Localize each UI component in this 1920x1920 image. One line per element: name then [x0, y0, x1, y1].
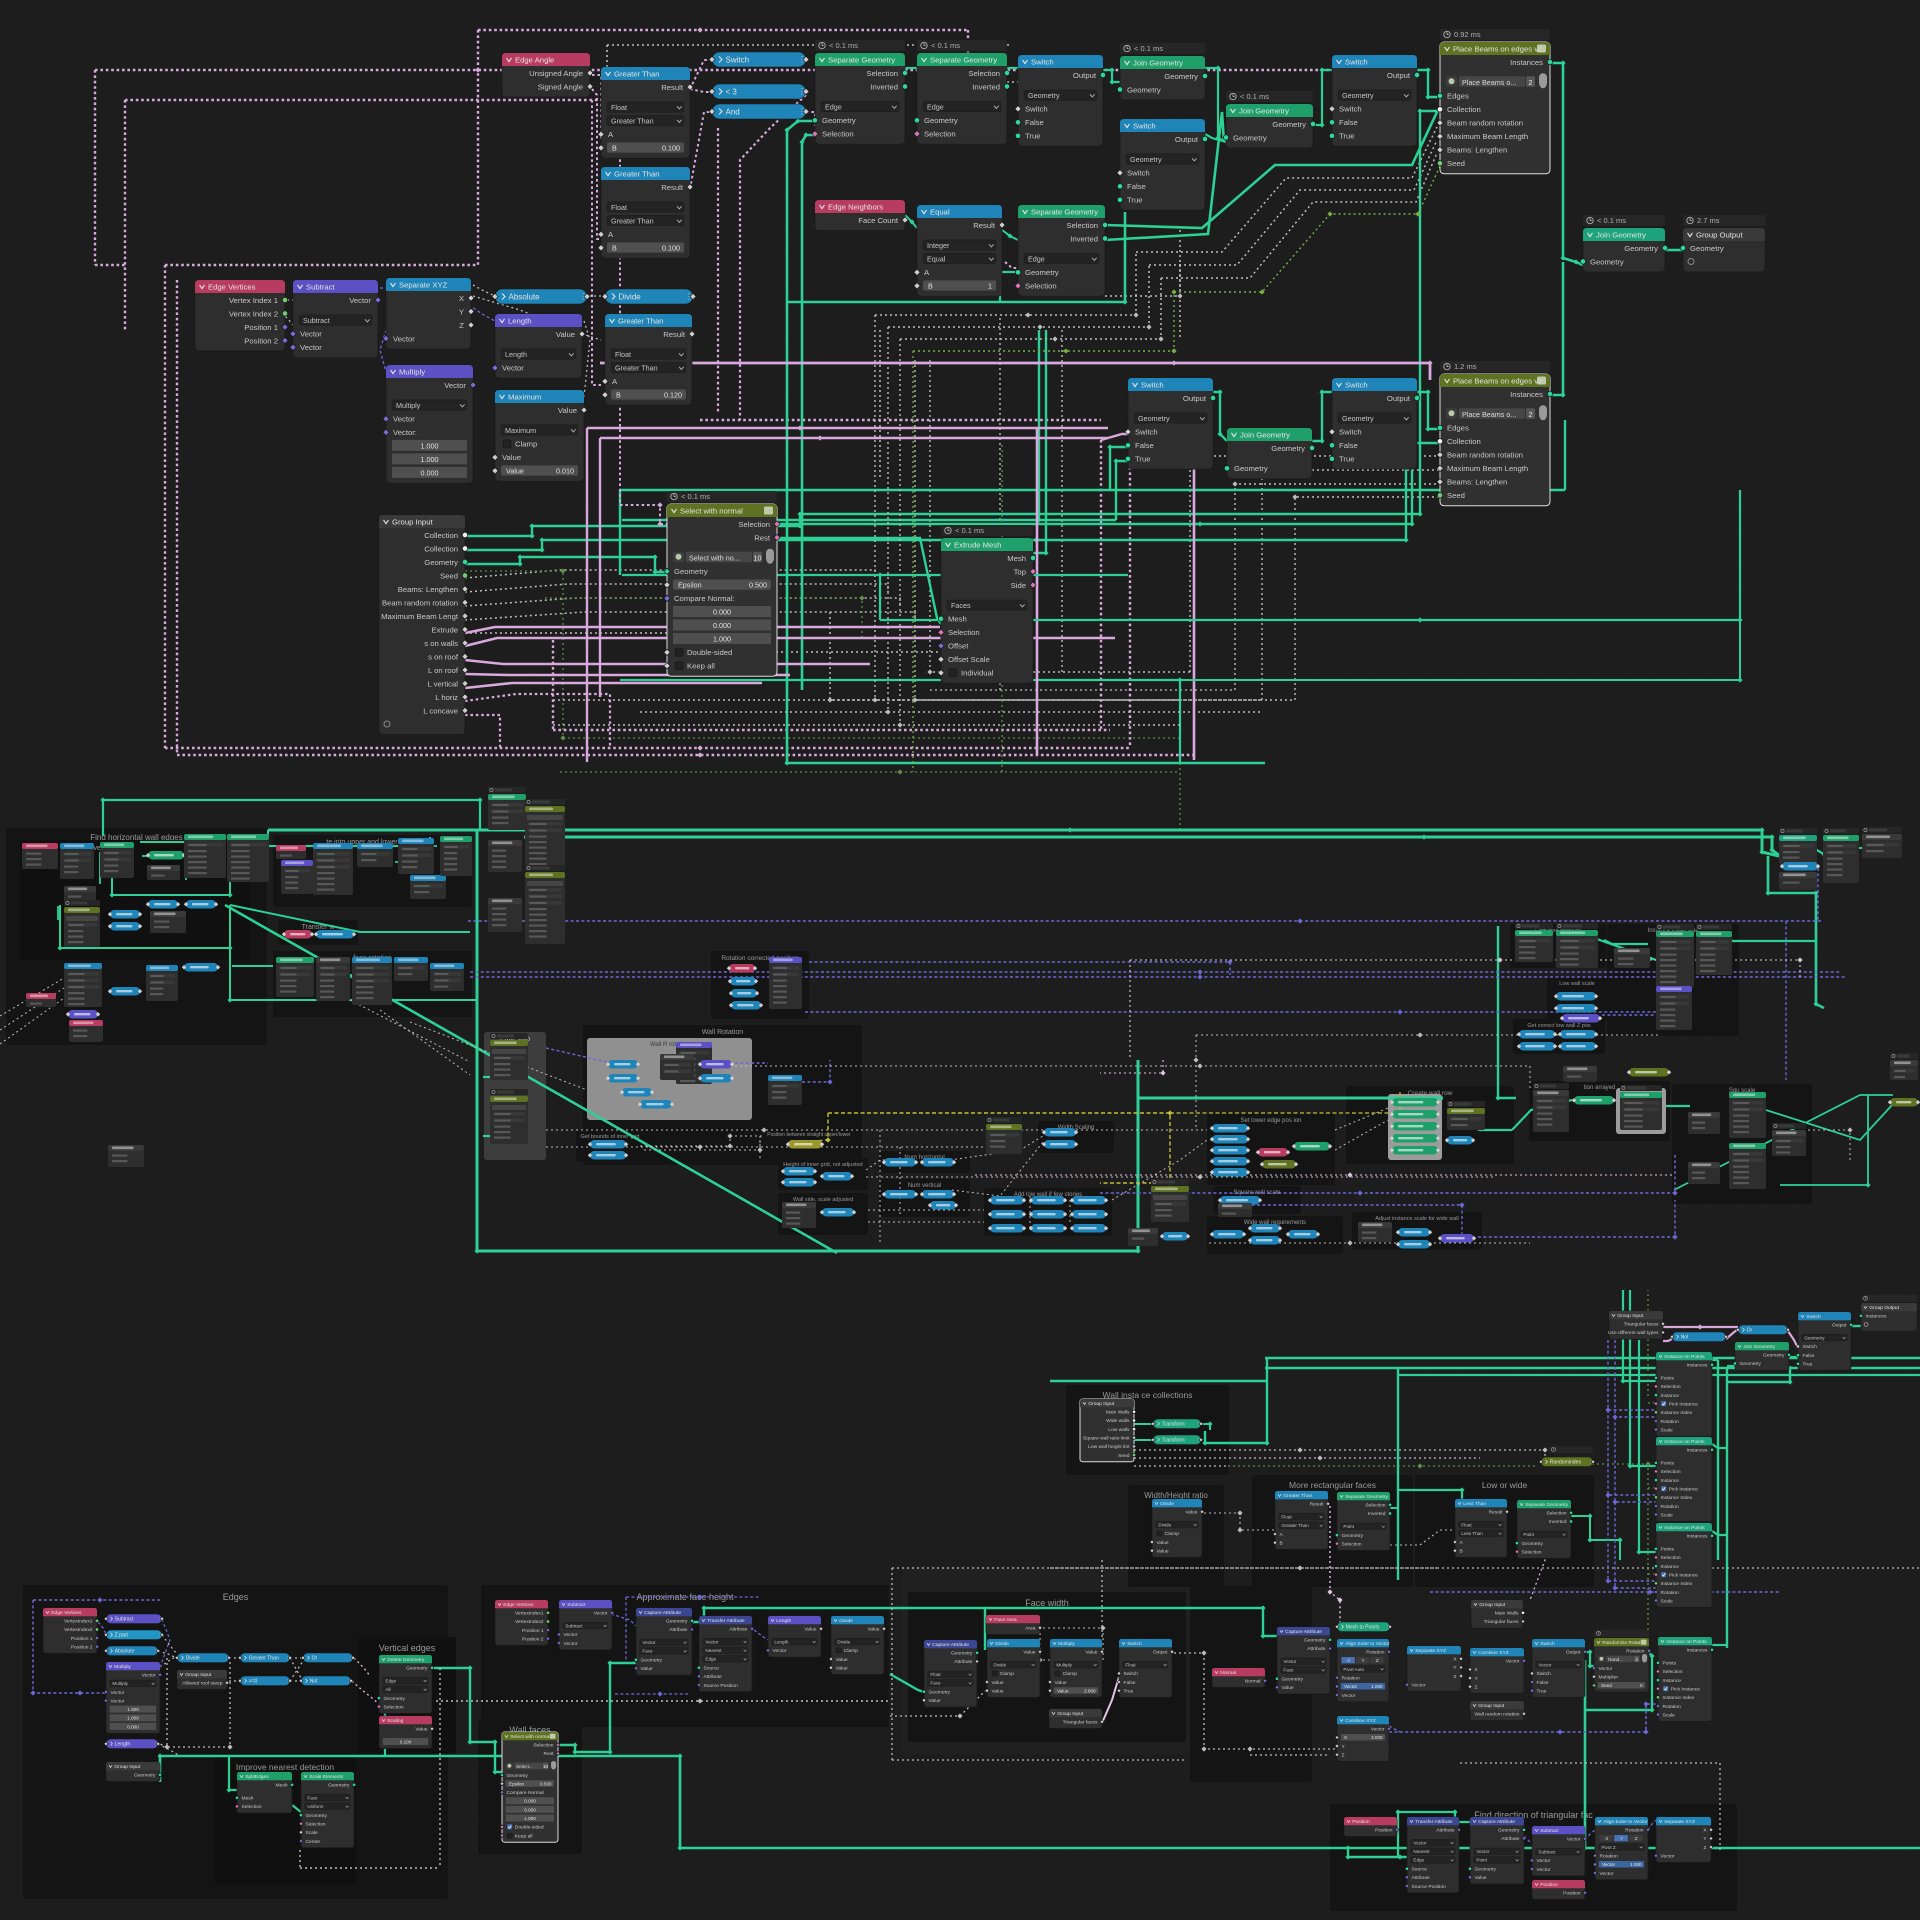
svg-text:0.100: 0.100: [400, 1739, 412, 1744]
svg-text:Seed: Seed: [1601, 1683, 1612, 1688]
svg-text:Clamp: Clamp: [1063, 1671, 1077, 1677]
svg-text:Geometry: Geometry: [1342, 91, 1374, 100]
svg-text:Transform: Transform: [1162, 1422, 1185, 1428]
svg-text:Selection: Selection: [822, 130, 854, 139]
svg-text:Epsilon: Epsilon: [678, 580, 702, 589]
svg-text:Float: Float: [611, 103, 627, 112]
svg-text:Greater Than: Greater Than: [614, 170, 660, 179]
svg-text:0.000: 0.000: [713, 607, 731, 616]
svg-text:Position: Position: [1375, 1828, 1393, 1834]
svg-text:Geometry: Geometry: [1522, 1541, 1544, 1547]
svg-text:False: False: [1339, 118, 1358, 127]
svg-text:Output: Output: [1153, 1650, 1168, 1656]
svg-text:Geometry: Geometry: [1127, 85, 1161, 94]
svg-text:Vector: Vector: [1371, 1727, 1385, 1733]
svg-text:Offset: Offset: [948, 642, 969, 651]
svg-text:Float: Float: [930, 1672, 941, 1677]
svg-text:Improve nearest detection: Improve nearest detection: [236, 1762, 335, 1772]
svg-text:Position: Position: [1352, 1819, 1370, 1825]
svg-text:Align Euler to Vector: Align Euler to Vector: [1345, 1641, 1390, 1647]
svg-text:Switch: Switch: [1025, 105, 1048, 114]
svg-text:Attribute: Attribute: [1307, 1646, 1325, 1652]
svg-text:Length: Length: [508, 317, 532, 326]
svg-text:Face: Face: [1283, 1668, 1294, 1673]
svg-text:Switch: Switch: [1540, 1641, 1555, 1647]
svg-text:0.000: 0.000: [713, 621, 731, 630]
svg-text:Edge: Edge: [385, 1678, 396, 1683]
svg-text:Geometry: Geometry: [1498, 1828, 1520, 1834]
svg-text:Collection: Collection: [1447, 105, 1481, 114]
svg-text:Vector: Vector: [1602, 1862, 1615, 1867]
svg-text:Vector: Vector: [564, 1632, 578, 1638]
svg-text:Position 1: Position 1: [71, 1636, 93, 1642]
svg-text:All: All: [385, 1687, 390, 1692]
svg-text:Group Output: Group Output: [1869, 1305, 1899, 1311]
svg-text:Z: Z: [459, 321, 464, 330]
svg-text:Value: Value: [1185, 1510, 1197, 1516]
svg-text:Edge: Edge: [1413, 1858, 1424, 1863]
svg-text:Pick Instance: Pick Instance: [1671, 1687, 1700, 1693]
svg-text:Inverted: Inverted: [1368, 1511, 1386, 1517]
svg-text:Instance Index: Instance Index: [1661, 1410, 1693, 1416]
svg-text:Value: Value: [506, 466, 524, 475]
svg-text:Y: Y: [1620, 1836, 1623, 1841]
svg-text:B: B: [1280, 1541, 1283, 1547]
svg-text:L on roof: L on roof: [428, 666, 459, 675]
svg-text:Instances: Instances: [1687, 1648, 1708, 1654]
svg-text:Length: Length: [774, 1639, 788, 1644]
svg-text:Select with norma: Select with norma: [510, 1734, 549, 1740]
svg-text:Multiply: Multiply: [114, 1664, 131, 1670]
svg-text:Edges: Edges: [1447, 424, 1469, 433]
svg-text:X: X: [1605, 1836, 1608, 1841]
svg-text:Length: Length: [505, 350, 527, 359]
svg-text:Instance: Instance: [1661, 1478, 1680, 1484]
svg-text:Keep all: Keep all: [687, 662, 715, 671]
svg-text:Value: Value: [1055, 1680, 1067, 1686]
svg-text:Beams: Lengthen: Beams: Lengthen: [1447, 478, 1507, 487]
svg-text:Float: Float: [611, 203, 627, 212]
svg-text:Individual: Individual: [961, 669, 994, 678]
svg-text:Join Geometry: Join Geometry: [1743, 1344, 1775, 1350]
svg-text:Selection: Selection: [306, 1822, 326, 1828]
svg-text:Value: Value: [1475, 1875, 1487, 1881]
svg-text:Source Position: Source Position: [1412, 1884, 1447, 1890]
svg-text:Rest: Rest: [543, 1751, 554, 1757]
svg-text:Greater Than: Greater Than: [1281, 1523, 1309, 1528]
svg-text:Float: Float: [1281, 1514, 1292, 1519]
svg-text:B: B: [612, 243, 617, 252]
svg-text:True: True: [1339, 455, 1355, 464]
svg-text:Mesh: Mesh: [276, 1783, 288, 1789]
svg-text:Geometry: Geometry: [1233, 133, 1267, 142]
svg-text:Rotation: Rotation: [1342, 1676, 1360, 1682]
svg-text:Vector: Vector: [1476, 1849, 1489, 1854]
svg-text:Geometry: Geometry: [1138, 414, 1170, 423]
svg-text:Source: Source: [1412, 1867, 1428, 1873]
svg-text:1: 1: [988, 281, 992, 290]
svg-text:Join Geometry: Join Geometry: [1133, 59, 1183, 68]
svg-text:Instances: Instances: [1687, 1534, 1708, 1540]
svg-text:Switch: Switch: [1127, 1641, 1142, 1647]
svg-text:Switch: Switch: [1133, 122, 1156, 131]
svg-text:Allowed roof steep: Allowed roof steep: [182, 1681, 223, 1687]
svg-text:Attribute: Attribute: [954, 1659, 972, 1665]
svg-text:Switch: Switch: [1806, 1314, 1821, 1320]
svg-text:1.000: 1.000: [1371, 1684, 1383, 1689]
svg-text:Mesh: Mesh: [242, 1796, 254, 1802]
svg-text:Scale: Scale: [1663, 1712, 1676, 1718]
svg-text:0.100: 0.100: [662, 143, 680, 152]
svg-text:Geometry: Geometry: [1282, 1677, 1304, 1683]
svg-text:Mesh: Mesh: [1007, 554, 1026, 563]
svg-text:Instances: Instances: [1510, 390, 1543, 399]
svg-text:3: 3: [1635, 1657, 1638, 1662]
svg-text:Adjust instance scale for wide: Adjust instance scale for wide wall: [1375, 1216, 1458, 1222]
svg-text:Rest: Rest: [754, 533, 771, 542]
svg-text:Instances: Instances: [1687, 1448, 1708, 1454]
svg-text:Divide: Divide: [1160, 1501, 1174, 1507]
svg-text:Instances: Instances: [1866, 1314, 1887, 1320]
svg-text:Place Beams on edges v2: Place Beams on edges v2: [1453, 377, 1542, 386]
svg-text:Selection: Selection: [384, 1705, 404, 1711]
svg-text:s on roof: s on roof: [428, 652, 459, 661]
svg-text:Triangular faces: Triangular faces: [1063, 1720, 1098, 1726]
svg-text:Low wall height lmt: Low wall height lmt: [1088, 1444, 1130, 1450]
svg-text:Multiply: Multiply: [1056, 1662, 1072, 1667]
svg-text:Randomindex: Randomindex: [1550, 1460, 1582, 1466]
svg-text:Vector: Vector: [142, 1673, 156, 1679]
svg-text:Length: Length: [776, 1618, 791, 1624]
svg-text:Low wall scale: Low wall scale: [1559, 981, 1594, 987]
svg-text:Geometry: Geometry: [641, 1658, 663, 1664]
svg-text:1.2 ms: 1.2 ms: [1454, 362, 1477, 371]
svg-text:Selection: Selection: [1522, 1550, 1542, 1556]
svg-text:Selection: Selection: [1663, 1669, 1683, 1675]
svg-text:Switch: Switch: [1124, 1671, 1139, 1677]
svg-text:Vector: Vector: [349, 296, 371, 305]
svg-text:Clamp: Clamp: [515, 440, 537, 449]
svg-text:Result: Result: [663, 330, 686, 339]
svg-text:Rotation: Rotation: [1600, 1854, 1618, 1860]
svg-text:False: False: [1537, 1680, 1549, 1686]
svg-text:Selection: Selection: [948, 628, 980, 637]
svg-text:Combine XYZ: Combine XYZ: [1478, 1650, 1508, 1656]
svg-text:Switch: Switch: [1141, 381, 1164, 390]
svg-text:Mesh: Mesh: [948, 615, 967, 624]
svg-text:Output: Output: [1387, 394, 1411, 403]
svg-text:1.000: 1.000: [1630, 1862, 1642, 1867]
svg-text:Capture Attribute: Capture Attribute: [644, 1610, 681, 1616]
svg-text:1.000: 1.000: [524, 1816, 536, 1821]
svg-text:X: X: [459, 294, 464, 303]
svg-text:< 0.1 ms: < 0.1 ms: [1240, 92, 1269, 101]
svg-text:Group Input: Group Input: [1057, 1711, 1083, 1717]
svg-text:Selection: Selection: [738, 520, 770, 529]
svg-text:Multiply: Multiply: [1058, 1641, 1075, 1647]
svg-text:B: B: [612, 143, 617, 152]
svg-text:False: False: [1135, 441, 1154, 450]
svg-text:Switch: Switch: [1339, 428, 1362, 437]
svg-text:Value: Value: [1057, 1688, 1069, 1693]
svg-text:VertexIndex1: VertexIndex1: [515, 1611, 544, 1617]
svg-text:Beam random rotation: Beam random rotation: [382, 598, 458, 607]
svg-text:Value: Value: [804, 1627, 816, 1633]
svg-text:True: True: [1803, 1362, 1813, 1368]
svg-text:Seed: Seed: [1118, 1453, 1130, 1459]
svg-text:Value: Value: [1282, 1685, 1294, 1691]
svg-text:VertexIndex2: VertexIndex2: [515, 1619, 544, 1625]
svg-text:Triangular faces: Triangular faces: [1624, 1322, 1659, 1328]
svg-text:Capture Attribute: Capture Attribute: [1285, 1629, 1322, 1635]
svg-text:Scale: Scale: [1661, 1427, 1674, 1433]
svg-text:Edges: Edges: [223, 1592, 249, 1602]
svg-text:Vertex Index 1: Vertex Index 1: [229, 296, 278, 305]
svg-text:Or: Or: [312, 1656, 318, 1662]
svg-text:Switch: Switch: [1537, 1671, 1552, 1677]
svg-text:Equal: Equal: [930, 208, 950, 217]
svg-text:Get correct low wall Z pos: Get correct low wall Z pos: [1527, 1023, 1591, 1029]
svg-text:SplitEdges: SplitEdges: [245, 1774, 269, 1780]
svg-text:Randomize Rotat: Randomize Rotat: [1602, 1640, 1640, 1646]
svg-text:Vector: Vector: [1283, 1659, 1296, 1664]
svg-text:Pick Instance: Pick Instance: [1669, 1573, 1698, 1579]
svg-text:Transfer Attribute: Transfer Attribute: [1415, 1819, 1453, 1825]
svg-text:Scaling: Scaling: [387, 1718, 403, 1724]
svg-text:Compare Normal:: Compare Normal:: [674, 594, 735, 603]
svg-text:Geometry: Geometry: [1740, 1361, 1762, 1367]
svg-text:Point: Point: [1476, 1858, 1487, 1863]
svg-text:Vector: Vector: [1506, 1659, 1520, 1665]
svg-text:Geometry: Geometry: [1342, 414, 1374, 423]
svg-text:1.000: 1.000: [127, 1716, 139, 1721]
svg-text:Value: Value: [641, 1666, 653, 1672]
svg-text:Output: Output: [1566, 1650, 1581, 1656]
svg-text:Epsilon: Epsilon: [509, 1781, 525, 1786]
svg-text:Main Walls: Main Walls: [1106, 1410, 1130, 1416]
svg-text:Absolute: Absolute: [509, 292, 541, 301]
svg-text:Clamp: Clamp: [1000, 1671, 1014, 1677]
svg-text:L concave: L concave: [423, 706, 458, 715]
svg-text:Rotation: Rotation: [1366, 1650, 1384, 1656]
svg-text:Rotation: Rotation: [1661, 1419, 1679, 1425]
svg-text:Result: Result: [973, 221, 996, 230]
svg-text:Vector: Vector: [1537, 1858, 1551, 1864]
svg-text:1.000: 1.000: [421, 441, 439, 450]
svg-text:Select with normal: Select with normal: [680, 507, 743, 516]
svg-text:2.000: 2.000: [1371, 1735, 1383, 1740]
svg-text:Switch: Switch: [726, 55, 750, 64]
svg-text:Join Geometry: Join Geometry: [1239, 107, 1289, 116]
svg-text:Subtract: Subtract: [306, 283, 335, 292]
svg-text:Greater Than: Greater Than: [614, 70, 660, 79]
svg-text:Vertex Index 2: Vertex Index 2: [229, 309, 278, 318]
svg-text:Selection: Selection: [1661, 1555, 1681, 1561]
svg-text:Face width: Face width: [1025, 1598, 1069, 1608]
svg-text:Triangular faces: Triangular faces: [1484, 1619, 1519, 1625]
svg-text:Geometry: Geometry: [1804, 1335, 1825, 1340]
svg-text:Greater Than: Greater Than: [1283, 1493, 1312, 1499]
svg-text:Float: Float: [1461, 1522, 1472, 1527]
svg-text:False: False: [1339, 441, 1358, 450]
svg-text:Divide: Divide: [1158, 1522, 1171, 1527]
svg-text:Num vertical: Num vertical: [908, 1183, 941, 1189]
svg-text:Vector: Vector: [111, 1690, 125, 1696]
svg-text:Vector: Vector: [300, 330, 322, 339]
svg-text:Faces: Faces: [951, 601, 971, 610]
svg-text:Value: Value: [992, 1680, 1004, 1686]
svg-text:Geometry: Geometry: [1025, 268, 1059, 277]
svg-text:< 0.1 ms: < 0.1 ms: [1134, 44, 1163, 53]
svg-text:X: X: [1347, 1658, 1350, 1663]
svg-text:< 0.1 ms: < 0.1 ms: [931, 41, 960, 50]
svg-text:False: False: [1025, 118, 1044, 127]
svg-text:Instance on Points: Instance on Points: [1664, 1525, 1705, 1531]
svg-text:Geometry: Geometry: [1234, 464, 1268, 473]
svg-text:Place Beams o...: Place Beams o...: [1462, 78, 1516, 87]
svg-text:Group Input: Group Input: [1479, 1602, 1505, 1608]
svg-text:A: A: [608, 130, 614, 139]
svg-text:Edge Vertices: Edge Vertices: [503, 1602, 534, 1608]
svg-text:Less Than: Less Than: [1461, 1531, 1483, 1536]
svg-text:Geometry: Geometry: [1271, 444, 1305, 453]
svg-text:tion arrayed: tion arrayed: [1584, 1085, 1616, 1091]
svg-text:Square wall ratio limit: Square wall ratio limit: [1083, 1436, 1130, 1442]
svg-text:Geometry: Geometry: [1164, 72, 1198, 81]
svg-text:Instance Index: Instance Index: [1663, 1695, 1695, 1701]
svg-text:Points: Points: [1661, 1376, 1675, 1382]
svg-text:0.120: 0.120: [664, 390, 682, 399]
svg-text:Selection: Selection: [924, 130, 956, 139]
svg-text:Attribute: Attribute: [1436, 1828, 1454, 1834]
svg-text:Instances: Instances: [1687, 1363, 1708, 1369]
svg-text:s on walls: s on walls: [424, 639, 458, 648]
svg-text:Divide: Divide: [839, 1618, 853, 1624]
svg-text:Points: Points: [1661, 1461, 1675, 1467]
svg-text:Clamp: Clamp: [844, 1648, 858, 1654]
svg-text:Group Input: Group Input: [1617, 1313, 1643, 1319]
svg-text:Wall Rotation: Wall Rotation: [702, 1029, 743, 1036]
svg-text:Edge Vertices: Edge Vertices: [208, 283, 256, 292]
svg-text:Geometry: Geometry: [1304, 1638, 1326, 1644]
svg-text:Vector: Vector: [1344, 1684, 1357, 1689]
svg-text:Output: Output: [1175, 135, 1199, 144]
svg-text:Transfer Attribute: Transfer Attribute: [707, 1618, 745, 1624]
svg-text:Z: Z: [1342, 1753, 1345, 1759]
svg-text:B: B: [616, 390, 621, 399]
svg-text:Join Geometry: Join Geometry: [1596, 231, 1646, 240]
svg-text:Result: Result: [661, 83, 684, 92]
svg-text:Divide: Divide: [995, 1641, 1009, 1647]
svg-text:Group Input: Group Input: [1478, 1703, 1504, 1709]
svg-text:Inverted: Inverted: [1549, 1519, 1567, 1525]
svg-text:Value: Value: [556, 330, 575, 339]
svg-text:And: And: [726, 107, 740, 116]
svg-text:Rotation: Rotation: [1625, 1828, 1643, 1834]
svg-text:Maximum Beam Length: Maximum Beam Length: [1447, 464, 1528, 473]
svg-text:Delete Geometry: Delete Geometry: [387, 1657, 425, 1663]
svg-text:Seed: Seed: [440, 571, 458, 580]
svg-text:Vector: Vector: [111, 1699, 125, 1705]
svg-text:Instance: Instance: [1661, 1393, 1680, 1399]
svg-text:Geometry: Geometry: [951, 1651, 973, 1657]
svg-text:Offset Scale: Offset Scale: [948, 655, 990, 664]
svg-text:Points: Points: [1663, 1661, 1677, 1667]
svg-text:Vector: Vector: [1412, 1683, 1426, 1689]
svg-text:A: A: [924, 268, 930, 277]
svg-text:Group Input: Group Input: [1088, 1401, 1114, 1407]
svg-text:Vector: Vector: [444, 381, 466, 390]
svg-text:Attribute: Attribute: [1501, 1836, 1519, 1842]
svg-text:Geometry: Geometry: [1272, 120, 1306, 129]
svg-text:Scale Elements: Scale Elements: [309, 1774, 344, 1780]
svg-text:Position: Position: [1540, 1882, 1558, 1888]
svg-text:Geometry: Geometry: [666, 1619, 688, 1625]
svg-text:Z: Z: [1704, 1845, 1707, 1851]
svg-text:Combine XYZ: Combine XYZ: [1345, 1718, 1375, 1724]
svg-text:Edge Vertices: Edge Vertices: [51, 1610, 82, 1616]
svg-text:Less Than: Less Than: [1463, 1501, 1486, 1507]
svg-text:Vector: Vector: [773, 1648, 787, 1654]
svg-text:Separate XYZ: Separate XYZ: [1415, 1648, 1446, 1654]
svg-text:Instance: Instance: [1661, 1564, 1680, 1570]
svg-text:Group Input: Group Input: [392, 518, 433, 527]
svg-text:Switch: Switch: [1803, 1344, 1818, 1350]
svg-text:Attribute: Attribute: [729, 1627, 747, 1633]
svg-text:Source Position: Source Position: [704, 1683, 739, 1689]
svg-text:Position between straight uppe: Position between straight upper/lower: [767, 1132, 851, 1138]
svg-text:True: True: [1339, 132, 1355, 141]
svg-text:1.000: 1.000: [713, 634, 731, 643]
svg-text:Extrude: Extrude: [432, 625, 459, 634]
svg-text:Output: Output: [1832, 1323, 1847, 1329]
svg-text:2.000: 2.000: [1084, 1688, 1096, 1693]
svg-text:Equal: Equal: [927, 254, 946, 263]
svg-text:A: A: [612, 377, 618, 386]
svg-text:Value: Value: [867, 1627, 879, 1633]
svg-text:Vector: Vector: [1413, 1840, 1426, 1845]
svg-text:Float: Float: [615, 350, 631, 359]
svg-text:Pick Instance: Pick Instance: [1669, 1487, 1698, 1493]
svg-text:Face Count: Face Count: [858, 216, 899, 225]
svg-text:Selection: Selection: [1066, 221, 1098, 230]
svg-text:Inverted: Inverted: [870, 82, 898, 91]
svg-text:Selection: Selection: [1025, 282, 1057, 291]
svg-text:Selection: Selection: [866, 69, 898, 78]
svg-text:Point: Point: [1523, 1532, 1534, 1537]
svg-text:Geometry: Geometry: [1763, 1353, 1785, 1359]
svg-text:Z: Z: [1454, 1674, 1457, 1680]
svg-text:Capture Attribute: Capture Attribute: [1478, 1819, 1515, 1825]
svg-text:Geometry: Geometry: [507, 1773, 529, 1779]
svg-text:Multiply: Multiply: [396, 401, 421, 410]
svg-text:Value: Value: [1085, 1650, 1097, 1656]
svg-text:< 0.1 ms: < 0.1 ms: [1597, 216, 1626, 225]
svg-text:Selection: Selection: [968, 69, 1000, 78]
svg-text:False: False: [1127, 182, 1146, 191]
svg-text:Seed: Seed: [1447, 159, 1465, 168]
svg-text:Wall random rotation: Wall random rotation: [1475, 1712, 1520, 1718]
svg-text:Separate Geometry: Separate Geometry: [1345, 1494, 1388, 1500]
svg-text:Greater Than: Greater Than: [611, 216, 654, 225]
svg-text:Low or wide: Low or wide: [1482, 1480, 1528, 1490]
svg-text:Geometry: Geometry: [929, 1690, 951, 1696]
svg-text:Greater Than: Greater Than: [618, 317, 664, 326]
svg-text:Value: Value: [558, 406, 577, 415]
svg-text:True: True: [1025, 132, 1041, 141]
svg-text:Divide: Divide: [186, 1656, 200, 1662]
svg-text:Switch: Switch: [1339, 105, 1362, 114]
